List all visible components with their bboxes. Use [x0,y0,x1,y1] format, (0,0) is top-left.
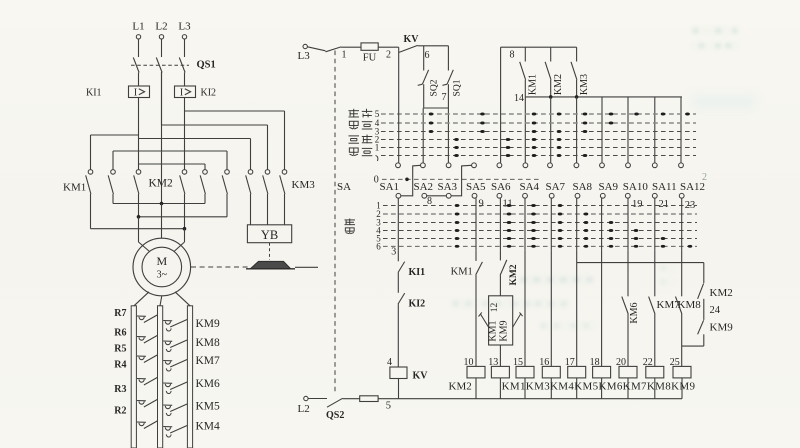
svg-text:7: 7 [442,92,447,103]
svg-text:1: 1 [342,49,347,60]
svg-text:SA1: SA1 [380,181,400,193]
svg-text:KM2: KM2 [509,264,519,285]
svg-text:19: 19 [632,199,643,210]
svg-text:KM1: KM1 [63,182,86,194]
svg-text:KM2: KM2 [553,74,564,95]
svg-text:KV: KV [404,34,420,45]
svg-text:3: 3 [391,247,396,258]
svg-text:KM2: KM2 [710,287,733,299]
svg-text:12: 12 [490,303,500,313]
svg-text:SA3: SA3 [438,181,458,193]
svg-text:9: 9 [479,199,484,210]
svg-text:SA8: SA8 [573,181,593,193]
svg-text:KM9: KM9 [196,318,221,330]
svg-text:KM2: KM2 [149,178,174,190]
svg-text:SA6: SA6 [491,181,511,193]
svg-text:SA5: SA5 [466,181,486,193]
svg-text:SA: SA [337,181,351,193]
svg-text:R7: R7 [114,308,126,319]
svg-text:SA12: SA12 [680,181,705,193]
svg-text:KI1: KI1 [409,267,426,278]
svg-text:KM4: KM4 [196,421,221,433]
svg-text:QS1: QS1 [197,60,216,71]
svg-text:KM5: KM5 [196,401,221,413]
svg-text:6: 6 [376,241,381,251]
svg-text:KI1: KI1 [86,88,102,99]
svg-text:L2: L2 [298,403,310,415]
svg-text:R5: R5 [114,344,126,355]
svg-text:5: 5 [386,400,391,411]
svg-text:SA7: SA7 [546,181,566,193]
svg-text:KM1KM3KM4KM5KM6KM7KM8KM9: KM1KM3KM4KM5KM6KM7KM8KM9 [502,380,696,392]
svg-text:KM9: KM9 [710,322,734,334]
svg-text:KM1: KM1 [488,320,499,341]
svg-text:I: I [134,88,137,99]
svg-text:KI2: KI2 [409,298,426,309]
svg-text:R4: R4 [114,360,126,371]
svg-text:KM7: KM7 [196,355,221,367]
svg-text:R6: R6 [114,328,126,339]
svg-text:FU: FU [363,53,377,64]
svg-text:R3: R3 [114,384,126,395]
svg-text:L2: L2 [155,21,167,33]
svg-text:KM1: KM1 [528,74,539,95]
svg-text:L3: L3 [298,50,311,62]
svg-text:0: 0 [374,175,379,186]
svg-text:KV: KV [413,371,429,382]
svg-text:2: 2 [386,50,391,61]
svg-text:3~: 3~ [157,270,168,281]
svg-text:I: I [180,88,183,99]
svg-text:SA10: SA10 [623,181,649,193]
svg-text:SA11: SA11 [652,181,677,193]
svg-text:KI2: KI2 [201,88,217,99]
svg-text:L3: L3 [178,21,191,33]
svg-text:SQ2: SQ2 [429,79,439,96]
svg-text:KM6: KM6 [629,302,640,323]
svg-text:KM1: KM1 [451,266,473,277]
svg-text:YB: YB [261,228,278,242]
svg-text:M: M [156,254,167,268]
svg-text:L1: L1 [132,21,144,33]
svg-text:SA2: SA2 [414,181,434,193]
svg-text:KM3: KM3 [292,179,316,191]
svg-text:KM8: KM8 [196,337,221,349]
svg-text:8: 8 [510,49,515,60]
svg-text:SA4: SA4 [520,181,540,193]
svg-text:11: 11 [503,199,513,210]
svg-text:R2: R2 [114,406,126,417]
svg-text:6: 6 [425,50,430,61]
svg-text:KM9: KM9 [499,320,510,341]
svg-text:KM8: KM8 [678,299,702,311]
svg-text:24: 24 [710,305,721,316]
svg-text:SA9: SA9 [599,181,619,193]
svg-text:QS2: QS2 [326,410,344,421]
svg-text:KM6: KM6 [196,378,221,390]
svg-text:KM2: KM2 [449,380,472,392]
svg-text:KM3: KM3 [579,74,590,95]
svg-text:21: 21 [659,199,670,210]
svg-text:1: 1 [375,143,380,153]
svg-text:SQ1: SQ1 [452,79,462,96]
svg-text:14: 14 [514,93,524,104]
svg-text:4: 4 [387,357,392,368]
